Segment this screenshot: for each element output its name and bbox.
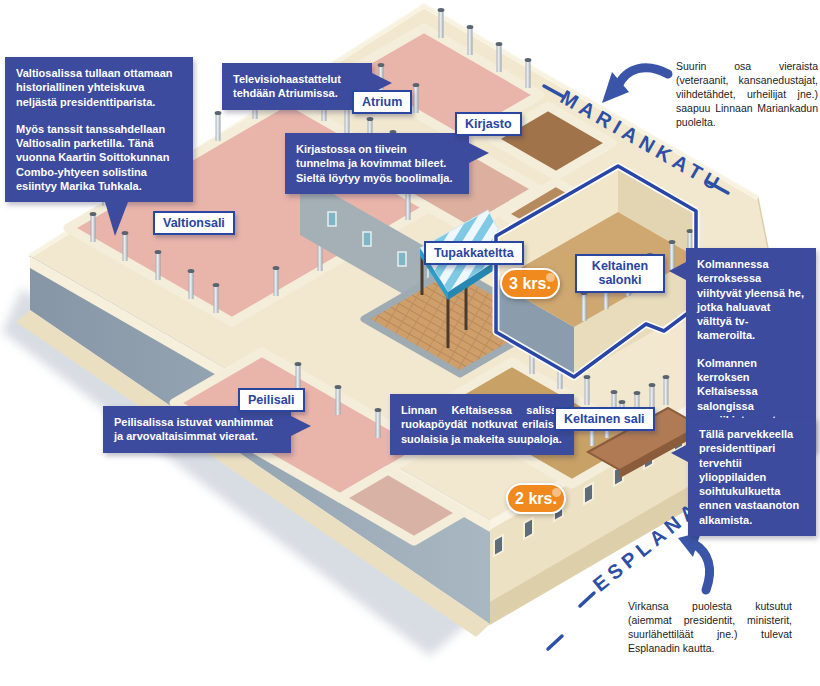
callout-parveke: Tällä parvekkeella presidenttipari terve… <box>688 418 816 536</box>
arrow-esplanadi-icon <box>678 532 710 590</box>
badge-third-floor: 3 krs. <box>500 268 560 299</box>
room-label-valtionsali: Valtionsali <box>153 211 235 235</box>
arrow-mariankatu-icon <box>602 68 668 103</box>
infographic-stage: MARIANKATU ESPLANADI Valtiosalissa tulla… <box>0 0 820 686</box>
room-label-atrium: Atrium <box>352 90 412 114</box>
room-label-tupakkateltta: Tupakkateltta <box>424 241 524 265</box>
callout-kolmas-p2: Kolmannen kerroksen Keltaisessa salongis… <box>697 357 788 426</box>
callout-parveke-text: Tällä parvekkeella presidenttipari terve… <box>699 427 805 527</box>
callout-peilisali: Peilisalissa istuvat vanhimmat ja arvova… <box>103 406 291 453</box>
badge-second-floor: 2 krs. <box>506 483 566 514</box>
callout-keltainen-sali: Linnan Keltaisessa salissa ruokapöydät n… <box>390 394 574 455</box>
room-label-keltainen-sali: Keltainen sali <box>554 407 655 431</box>
callout-valtiosali-p1: Valtiosalissa tullaan ottamaan historial… <box>16 67 173 108</box>
callout-keltainen-sali-text: Linnan Keltaisessa salissa ruokapöydät n… <box>401 403 563 446</box>
room-label-peilisali: Peilisali <box>238 388 305 412</box>
room-label-kirjasto: Kirjasto <box>455 112 522 136</box>
room-label-keltainen-salonki: Keltainen salonki <box>575 254 665 293</box>
callout-kolmas-p1: Kolmannessa kerroksessa viihtyvät yleens… <box>697 258 804 341</box>
callout-valtiosali: Valtiosalissa tullaan ottamaan historial… <box>5 57 193 202</box>
note-esplanadi-entry: Virkansa puolesta kutsutut (aiemmat pres… <box>628 600 792 656</box>
callout-atrium-text: Televisiohaastattelut tehdään Atriumissa… <box>233 72 361 101</box>
callout-peilisali-text: Peilisalissa istuvat vanhimmat ja arvova… <box>114 415 280 444</box>
note-mariankatu-entry: Suurin osa vieraista (veteraanit, kansan… <box>676 60 818 130</box>
callout-kirjasto-text: Kirjastossa on tiivein tunnelma ja kovim… <box>296 142 458 185</box>
callout-kirjasto: Kirjastossa on tiivein tunnelma ja kovim… <box>285 133 469 194</box>
callout-atrium: Televisiohaastattelut tehdään Atriumissa… <box>222 63 372 110</box>
callout-valtiosali-p2-bold: Marika Tuhkala. <box>60 180 142 192</box>
